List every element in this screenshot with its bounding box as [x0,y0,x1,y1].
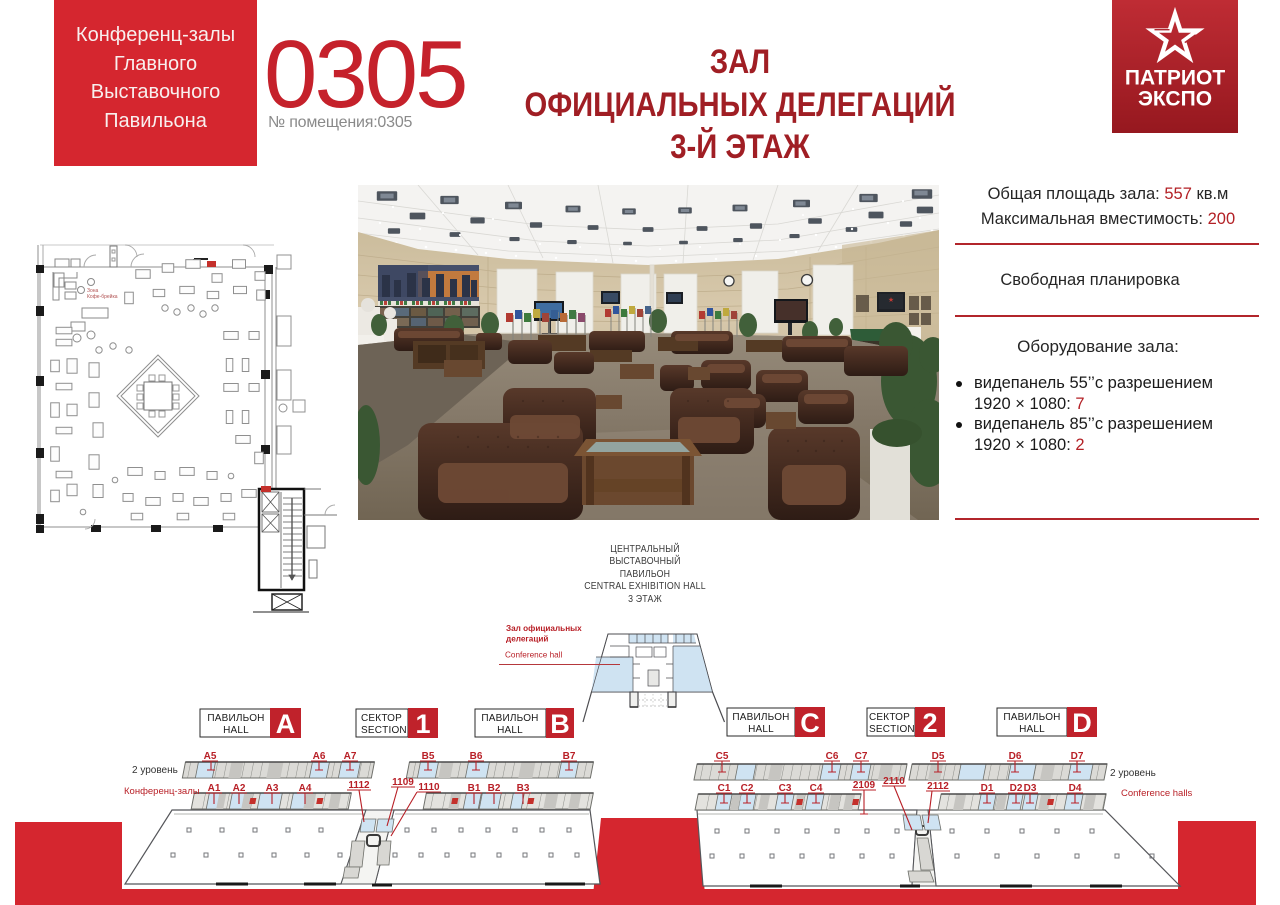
svg-text:1: 1 [415,709,430,739]
svg-text:2: 2 [922,708,937,738]
svg-text:A4: A4 [299,783,312,794]
svg-text:ПАВИЛЬОН: ПАВИЛЬОН [481,713,538,724]
svg-text:2110: 2110 [883,776,905,787]
svg-text:B7: B7 [563,751,576,762]
svg-text:делегаций: делегаций [506,635,548,644]
svg-text:1110: 1110 [418,782,440,793]
svg-text:A3: A3 [266,783,279,794]
svg-text:2 уровень: 2 уровень [132,765,178,776]
svg-text:D6: D6 [1009,751,1022,762]
svg-text:HALL: HALL [497,725,523,736]
svg-text:A7: A7 [344,751,357,762]
svg-text:Кофе-брейка: Кофе-брейка [87,293,118,300]
svg-text:B1: B1 [468,783,481,794]
svg-text:C: C [800,708,820,738]
svg-text:A6: A6 [313,751,326,762]
svg-text:ПАВИЛЬОН: ПАВИЛЬОН [207,713,264,724]
svg-text:A2: A2 [233,783,246,794]
svg-text:B6: B6 [470,751,483,762]
svg-text:Conference halls: Conference halls [1121,788,1193,799]
svg-text:C6: C6 [826,751,839,762]
svg-text:СЕКТОР: СЕКТОР [361,713,402,724]
svg-text:ЭКСПО: ЭКСПО [1138,88,1212,111]
svg-text:HALL: HALL [748,724,774,735]
svg-text:1112: 1112 [348,780,370,791]
svg-text:C3: C3 [779,783,792,794]
svg-text:D4: D4 [1069,783,1082,794]
svg-text:СЕКТОР: СЕКТОР [869,712,910,723]
svg-text:C1: C1 [718,783,731,794]
svg-text:D7: D7 [1071,751,1084,762]
svg-text:Conference hall: Conference hall [505,651,563,660]
svg-text:HALL: HALL [1019,724,1045,735]
svg-text:ПАТРИОТ: ПАТРИОТ [1125,67,1225,90]
svg-text:A1: A1 [208,783,221,794]
svg-text:D: D [1072,708,1092,738]
svg-text:B: B [550,709,570,739]
svg-text:C7: C7 [855,751,868,762]
svg-text:1109: 1109 [392,777,414,788]
svg-text:2112: 2112 [927,781,949,792]
svg-text:Конференц-залы: Конференц-залы [124,786,200,797]
svg-text:B5: B5 [422,751,435,762]
svg-text:HALL: HALL [223,725,249,736]
svg-text:D1: D1 [981,783,994,794]
svg-text:2109: 2109 [853,780,876,791]
svg-text:B2: B2 [488,783,501,794]
svg-text:D2: D2 [1010,783,1023,794]
svg-text:Зал официальных: Зал официальных [506,624,582,633]
svg-text:2 уровень: 2 уровень [1110,768,1156,779]
svg-text:D5: D5 [932,751,945,762]
svg-text:B3: B3 [517,783,530,794]
svg-text:A5: A5 [204,751,217,762]
svg-text:SECTION: SECTION [361,725,407,736]
svg-text:ПАВИЛЬОН: ПАВИЛЬОН [1003,712,1060,723]
svg-text:A: A [276,709,296,739]
svg-text:D3: D3 [1024,783,1037,794]
svg-text:C2: C2 [741,783,754,794]
svg-text:C5: C5 [716,751,729,762]
svg-text:SECTION: SECTION [869,724,915,735]
svg-text:C4: C4 [810,783,823,794]
svg-text:ПАВИЛЬОН: ПАВИЛЬОН [732,712,789,723]
